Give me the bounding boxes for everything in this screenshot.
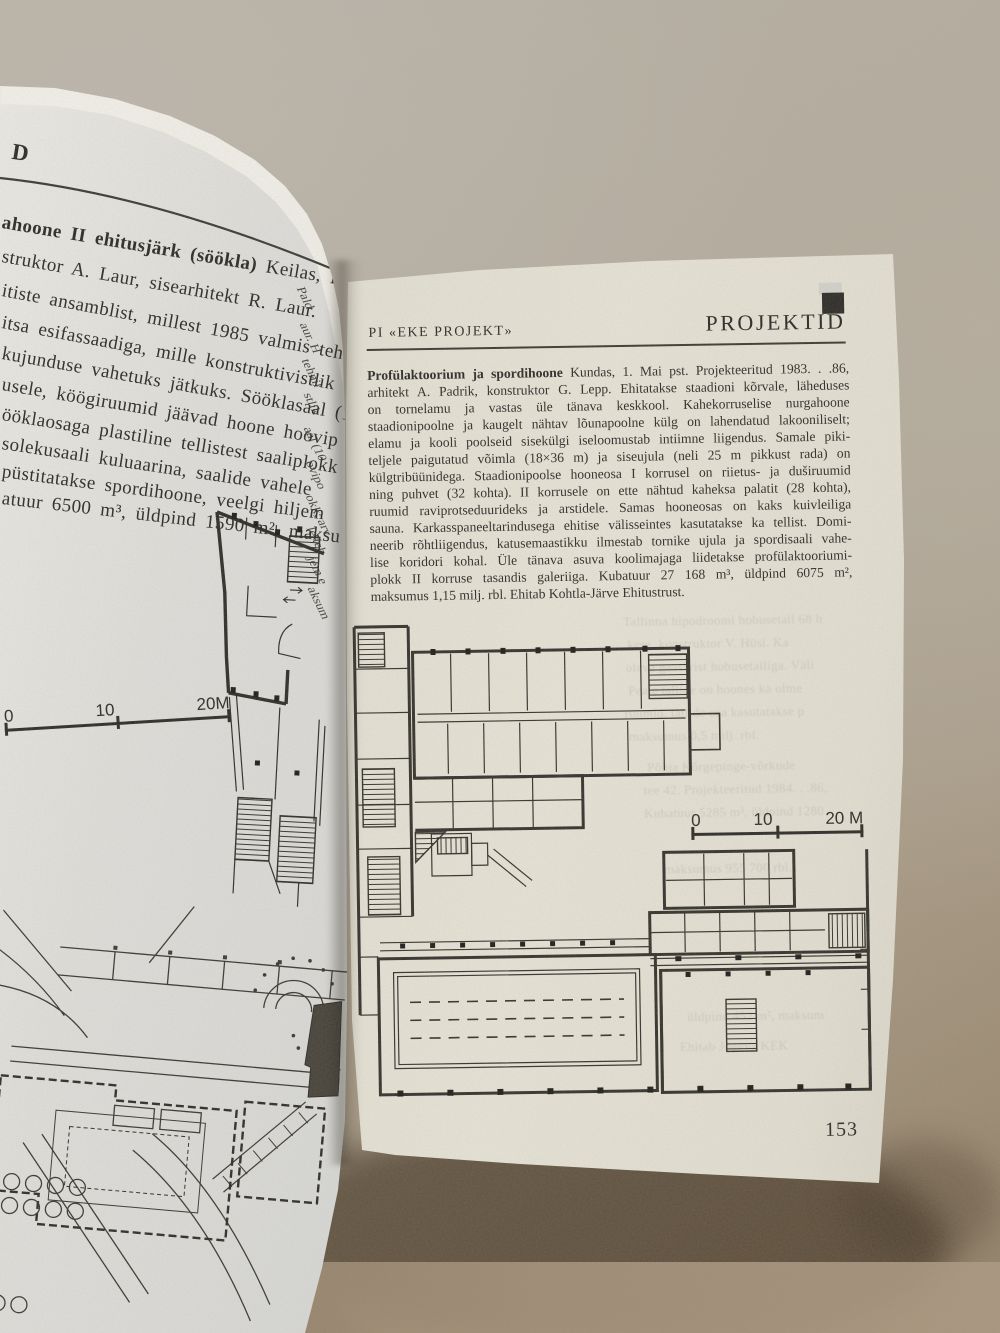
scale-label-20m: 20M: [196, 693, 230, 715]
lead-rest: Kundas, 1. Mai pst. Projekteeritud 1983.…: [563, 360, 850, 379]
right-floor-plan-drawing: [350, 609, 873, 1109]
scale-label-20m: 20 M: [825, 808, 863, 829]
left-site-plan-drawing: [0, 890, 354, 1333]
right-scale-bar: 0 10 20 M: [691, 808, 863, 836]
left-floor-plan-drawing: [0, 449, 353, 927]
gutter-shadow: [327, 260, 361, 1165]
lead-bold: Profülaktoorium ja spordihoone: [367, 365, 563, 383]
page-number: 153: [825, 1118, 858, 1142]
scale-label-10: 10: [95, 700, 115, 721]
header-rule: [367, 341, 846, 351]
book-photo: D ahoone II ehitusjärk (söökla) Keilas, …: [0, 0, 1000, 1333]
scale-label-10: 10: [753, 810, 772, 830]
